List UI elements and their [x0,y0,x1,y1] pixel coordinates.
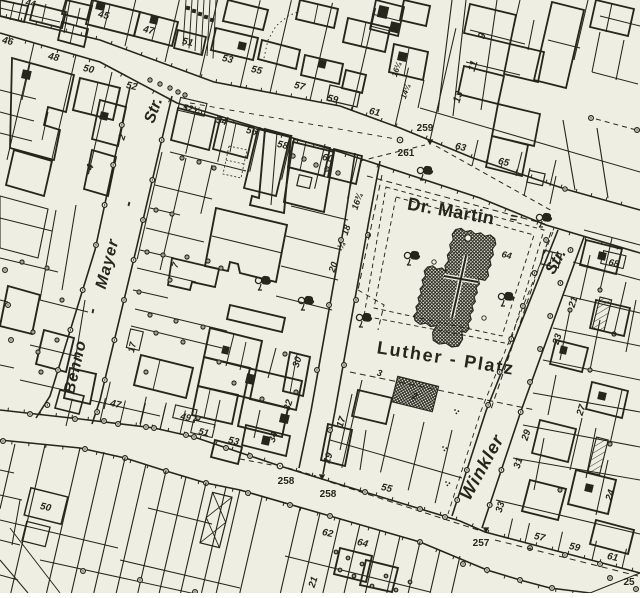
svg-text:258: 258 [320,489,337,500]
svg-text:257: 257 [473,538,490,549]
svg-text:259: 259 [417,123,434,134]
svg-text:25: 25 [623,577,635,588]
svg-text:258: 258 [278,476,295,487]
